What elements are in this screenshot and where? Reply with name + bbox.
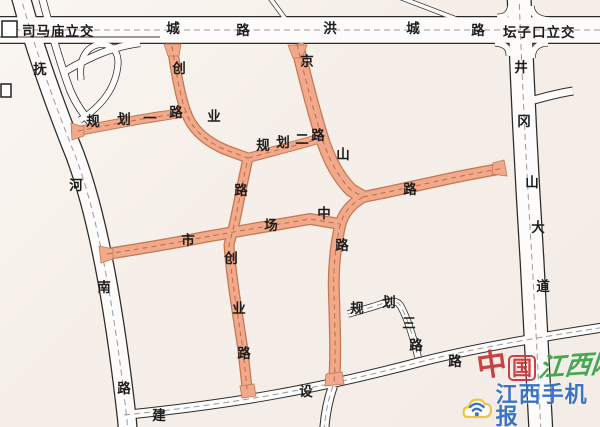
watermark-app-name: 江西手机报 xyxy=(496,385,600,427)
map-symbol xyxy=(1,84,11,97)
guihua-no3-road-label-char: 规 xyxy=(350,301,364,317)
jinggangshan-avenue-label-char: 山 xyxy=(525,175,539,191)
bridge-symbol xyxy=(2,21,17,37)
guihua-no1-road-label-char: 划 xyxy=(117,111,131,128)
simamiao-interchange-label: 司马庙立交 xyxy=(22,23,95,40)
jianshe-road-label-char: 路 xyxy=(448,353,462,370)
hongcheng-road-label-char: 路 xyxy=(471,22,485,39)
shichang-middle-road-label-char: 场 xyxy=(264,218,278,234)
jinggangshan-avenue-label-char: 道 xyxy=(536,278,550,295)
fuhe-south-road-label-char: 路 xyxy=(117,380,131,397)
jinggangshan-avenue-label-char: 冈 xyxy=(517,114,531,130)
watermark-china-jiangxi-net: 中 国 江西网 xyxy=(477,351,600,381)
chuangye-road-label-char: 业 xyxy=(207,109,221,125)
hongcheng-road-label-char: 城 xyxy=(166,20,180,37)
guihua-no1-road-label-char: 路 xyxy=(169,104,183,121)
fuhe-south-road-label-char: 抚 xyxy=(33,61,47,78)
guihua-no3-road-label-char: 三 xyxy=(402,316,416,332)
watermark-guo-char: 国 xyxy=(508,355,536,381)
tanzikou-interchange-label: 坛子口立交 xyxy=(503,24,576,41)
jingshan-road-label-char: 京 xyxy=(300,53,314,70)
flare-chuangye-south xyxy=(240,384,256,398)
jinggangshan-avenue-label-char: 井 xyxy=(514,59,528,76)
jingshan-road-label-char: 山 xyxy=(336,147,350,163)
watermark-jiangxi-mobile-news: 江西手机报 xyxy=(461,385,600,427)
hongcheng-road-label-char: 洪 xyxy=(323,20,337,37)
highlighted-road-casings xyxy=(78,44,504,389)
shichang-middle-road-label-char: 市 xyxy=(181,232,195,249)
hongcheng-road-label-char: 路 xyxy=(236,22,250,39)
guihua-no2-road-label-char: 规 xyxy=(256,138,270,154)
guihua-no2-road-label-char: 路 xyxy=(311,127,325,144)
fuhe-south-road-label-char: 河 xyxy=(69,177,83,194)
guihua-no3-road-label-char: 划 xyxy=(382,294,396,311)
city-road-map: 司马庙立交 坛子口立交 城路洪城路抚河南路井冈山大道建设路京山路市场中路创业路创… xyxy=(0,0,600,427)
watermark-zhong-char: 中 xyxy=(475,349,509,383)
chuangye-road-label-char: 路 xyxy=(234,182,248,199)
wifi-cloud-icon xyxy=(461,391,494,423)
watermark-jiangxi-net-text: 江西网 xyxy=(537,350,600,381)
jingshan-road-label-char: 路 xyxy=(403,181,417,198)
shichang-middle-road-label-char: 路 xyxy=(335,237,349,254)
jianshe-road-label-char: 建 xyxy=(151,407,166,424)
chuangye-road-label-char: 业 xyxy=(232,301,246,317)
fuhe-south-road-label-char: 南 xyxy=(97,279,111,296)
chuangye-road-label-char: 创 xyxy=(223,250,238,267)
jianshe-road-label-char: 设 xyxy=(299,384,313,400)
chuangye-road-label-char: 创 xyxy=(171,60,186,77)
guihua-no1-road-label-char: 一 xyxy=(143,111,157,127)
shichang-middle-road-label-char: 中 xyxy=(317,205,331,222)
jinggangshan-avenue-label-char: 大 xyxy=(531,219,545,236)
hongcheng-road-label-char: 城 xyxy=(406,20,420,37)
guihua-no2-road-label-char: 二 xyxy=(295,132,309,148)
chuangye-road-label-char: 路 xyxy=(237,345,251,362)
guihua-no1-road-label-char: 规 xyxy=(86,114,100,130)
guihua-no3-road-label-char: 路 xyxy=(409,337,423,354)
flare-jingshan-east xyxy=(492,160,507,176)
guihua-no2-road-label-char: 划 xyxy=(276,134,290,151)
